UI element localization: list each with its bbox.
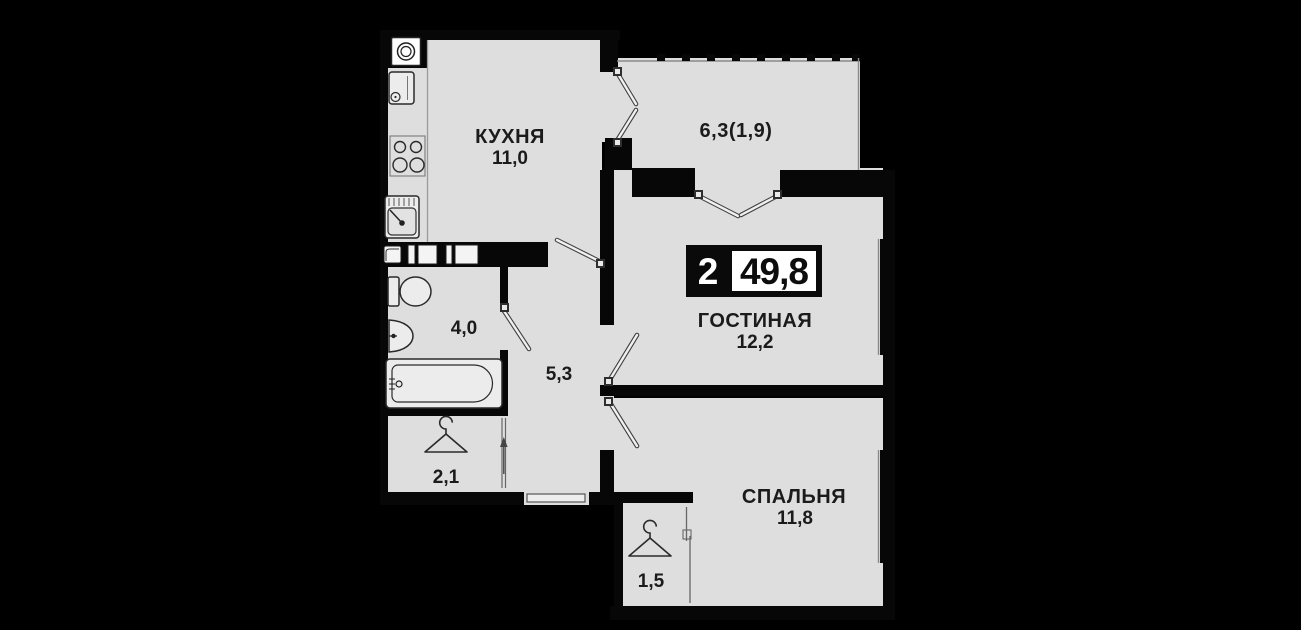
wall-segment	[600, 30, 618, 72]
wall-segment	[880, 450, 895, 563]
label-kitchen-area: 11,0	[492, 148, 528, 169]
wall-segment	[380, 492, 524, 505]
entrance-door	[527, 494, 585, 502]
wall-segment	[380, 408, 508, 416]
wall-segment	[883, 197, 895, 239]
wall-segment	[883, 563, 895, 608]
label-bathroom-area: 4,0	[451, 318, 477, 339]
kitchen-sink-icon	[385, 196, 419, 238]
kitchen-balcony-opening-floor	[600, 70, 618, 142]
floorplan-canvas: 2 49,8 КУХНЯ 11,0 6,3(1,9) ГОСТИНАЯ 12,2…	[0, 0, 1301, 630]
wall-segment	[600, 170, 614, 325]
wall-segment	[610, 492, 693, 503]
toilet-icon	[388, 277, 431, 306]
label-living-area: 12,2	[737, 332, 774, 353]
apartment-badge: 2 49,8	[686, 245, 822, 297]
wall-segment	[500, 267, 508, 309]
wall-segment	[380, 30, 388, 505]
vent-shaft	[446, 245, 452, 264]
label-bedroom-name: СПАЛЬНЯ	[742, 486, 846, 508]
vent-shaft	[408, 245, 415, 264]
label-balcony-area: 6,3(1,9)	[700, 120, 773, 142]
label-kitchen-name: КУХНЯ	[475, 126, 545, 148]
washing-machine-icon	[392, 38, 421, 66]
wall-segment	[614, 503, 623, 606]
wall-segment	[880, 239, 895, 355]
fridge-icon	[389, 72, 414, 104]
wall-living-bedroom-divider	[600, 385, 895, 396]
bathtub-icon	[386, 359, 502, 408]
wall-segment	[610, 606, 895, 620]
vent-shaft	[455, 245, 478, 264]
wall-segment	[780, 170, 895, 197]
label-bedroom-area: 11,8	[777, 508, 813, 529]
wall-segment	[632, 168, 695, 197]
badge-total-area: 49,8	[740, 251, 808, 292]
wall-segment	[589, 492, 614, 505]
label-living-name: ГОСТИНАЯ	[698, 310, 812, 332]
label-hallway-area: 5,3	[546, 364, 572, 385]
label-closet-area: 1,5	[638, 571, 665, 592]
wall-segment	[883, 398, 895, 450]
room-balcony-floor	[617, 58, 860, 170]
ventilation-shafts	[384, 245, 478, 264]
floorplan-svg: 2 49,8 КУХНЯ 11,0 6,3(1,9) ГОСТИНАЯ 12,2…	[0, 0, 1301, 630]
badge-room-count: 2	[698, 251, 719, 292]
vent-shaft	[418, 245, 437, 264]
label-wardrobe-area: 2,1	[433, 467, 460, 488]
